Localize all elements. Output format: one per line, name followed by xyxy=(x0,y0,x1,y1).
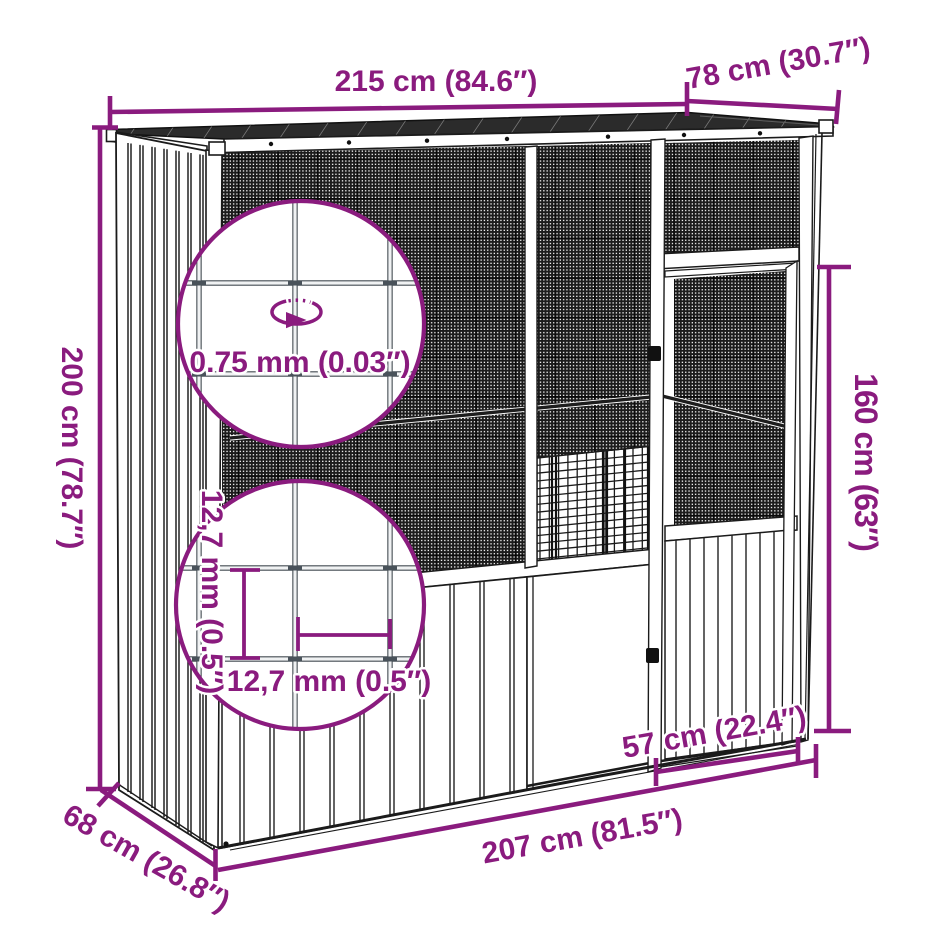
svg-text:215 cm (84.6″): 215 cm (84.6″) xyxy=(335,65,538,98)
svg-text:0.75 mm (0.03″): 0.75 mm (0.03″) xyxy=(189,346,410,379)
svg-text:12,7 mm (0.5″): 12,7 mm (0.5″) xyxy=(227,665,431,698)
svg-text:160 cm (63″): 160 cm (63″) xyxy=(848,373,884,551)
svg-text:12,7 mm (0.5″): 12,7 mm (0.5″) xyxy=(195,490,228,694)
svg-text:200 cm (78.7″): 200 cm (78.7″) xyxy=(55,347,88,550)
